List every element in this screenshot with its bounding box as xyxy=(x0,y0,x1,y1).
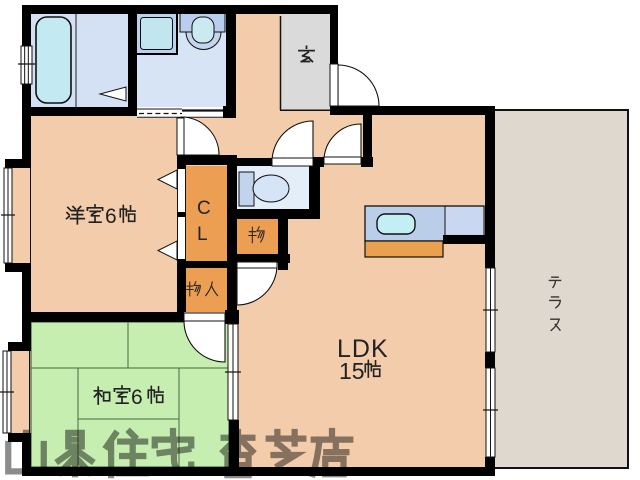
svg-text:6: 6 xyxy=(131,386,143,409)
svg-text:C: C xyxy=(197,198,211,219)
svg-text:15: 15 xyxy=(339,358,365,384)
svg-text:6: 6 xyxy=(105,205,117,228)
svg-text:L: L xyxy=(197,224,208,245)
